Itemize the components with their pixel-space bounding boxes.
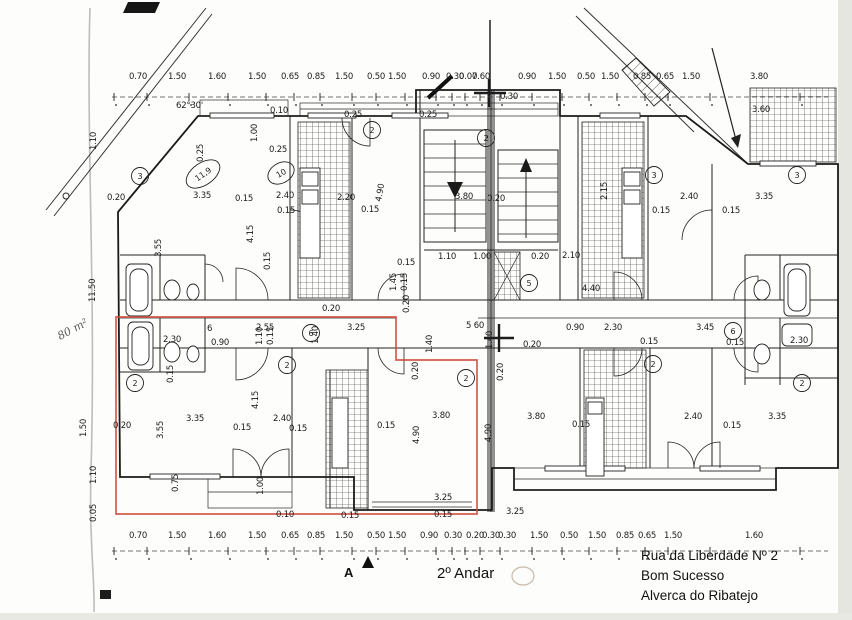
dim-label: 0.65: [281, 531, 299, 541]
address-line-3: Alverca do Ribatejo: [641, 588, 758, 603]
interior-walls: [120, 90, 838, 512]
dimension-dot: [466, 558, 468, 560]
address-line-1: Rua da Liberdade Nº 2: [641, 548, 778, 563]
room-number: 3: [137, 172, 142, 181]
dim-label: 0.25: [344, 110, 362, 120]
section-marker-a-label: A: [344, 565, 354, 580]
dim-label: 1.60: [208, 72, 226, 82]
dimension-dot: [148, 558, 150, 560]
dimension-dot: [267, 558, 269, 560]
dim-label: 3.35: [186, 414, 204, 424]
dim-label: 3.25: [434, 493, 452, 503]
dim-label: 0.15: [652, 206, 670, 216]
dim-label: 1.50: [664, 531, 682, 541]
room-number: 3: [651, 171, 656, 180]
dim-label: 0.20: [487, 194, 505, 204]
tiled-areas-hatch: [298, 88, 836, 508]
dim-label: 1.60: [208, 531, 226, 541]
address-line-2: Bom Sucesso: [641, 568, 724, 583]
dim-label: 0.25: [196, 144, 206, 162]
dim-label: 0.90: [422, 72, 440, 82]
dim-label: 4.15: [246, 225, 256, 243]
top-dimension-row: 0.701.501.601.500.650.851.500.501.500.90…: [112, 72, 828, 106]
dim-label: 0.25: [269, 145, 287, 155]
dimension-dot: [618, 558, 620, 560]
dim-label: 3.25: [506, 507, 524, 517]
room-number: 2: [369, 126, 374, 135]
dim-label: 3.80: [432, 411, 450, 421]
dimension-dot: [501, 104, 503, 106]
dim-label: 1.60: [745, 531, 763, 541]
dim-label: 0.15: [289, 424, 307, 434]
dim-label: 0.15: [235, 194, 253, 204]
dimension-dot: [321, 104, 323, 106]
dim-label: 0.60: [472, 72, 490, 82]
dim-label: 0.25: [419, 110, 437, 120]
area-annotation: 10: [275, 167, 288, 180]
dim-label: 2.40: [276, 191, 294, 201]
room-number: 2: [799, 379, 804, 388]
dim-label: 1.40: [425, 335, 435, 353]
dim-label: 2.40: [680, 192, 698, 202]
dim-label: 2.30: [163, 335, 181, 345]
dim-label: 1.40: [485, 331, 495, 349]
dim-label: 0.15: [572, 420, 590, 430]
dim-label: 1.50: [168, 72, 186, 82]
address-block: Rua da Liberdade Nº 2 Bom Sucesso Alverc…: [641, 548, 778, 603]
area-annotation: 11,9: [193, 166, 213, 184]
dim-label: 11.50: [88, 279, 98, 302]
dim-label: 3.60: [752, 105, 770, 115]
dimension-dot: [321, 558, 323, 560]
dim-label: 62°30': [176, 101, 203, 111]
dim-label: 1.00: [256, 477, 266, 495]
dim-label: 2.15: [600, 182, 610, 200]
dim-label: 3.80: [750, 72, 768, 82]
dimension-dot: [377, 104, 379, 106]
dim-label: 3.35: [193, 191, 211, 201]
dim-label: 4.40: [582, 284, 600, 294]
dimension-dot: [453, 104, 455, 106]
ramp-hatch: [622, 58, 670, 106]
room-number: 2: [463, 374, 468, 383]
dimension-dot: [267, 104, 269, 106]
room-number: 6: [730, 327, 735, 336]
dim-label: 0.85: [633, 72, 651, 82]
dim-label: 0.90: [518, 72, 536, 82]
dimension-dot: [533, 558, 535, 560]
dim-label: 0.15: [722, 206, 740, 216]
dimension-dot: [353, 558, 355, 560]
dim-label: 4.90: [484, 424, 494, 442]
dim-label: 3.80: [527, 412, 545, 422]
dimension-dot: [590, 104, 592, 106]
dimension-dot: [190, 558, 192, 560]
toilet: [187, 284, 199, 300]
dimension-dot: [646, 104, 648, 106]
dim-label: 1.10: [438, 252, 456, 262]
dimension-dot: [801, 558, 803, 560]
dim-label: 0.30: [500, 92, 518, 102]
room-number: 2: [284, 361, 289, 370]
dim-label: 0.15: [361, 205, 379, 215]
dim-label: 0.65: [281, 72, 299, 82]
dim-label: 0.90: [211, 338, 229, 348]
dim-label: 4.90: [374, 183, 387, 203]
dim-label: 0.15: [341, 511, 359, 521]
dim-label: 3.55: [156, 421, 166, 439]
dimension-dot: [669, 104, 671, 106]
dim-label: 1.50: [168, 531, 186, 541]
dim-label: 3.45: [696, 323, 714, 333]
dimension-dot: [563, 558, 565, 560]
floor-title: 2º Andar: [437, 565, 494, 582]
scan-mark: [123, 2, 160, 13]
dimension-dot: [437, 104, 439, 106]
dimension-dot: [801, 104, 803, 106]
kitchen-counter: [332, 398, 348, 468]
dim-label: 2.30: [790, 336, 808, 346]
dim-label: 0.85: [616, 531, 634, 541]
dimension-dot: [711, 104, 713, 106]
dimension-dot: [501, 558, 503, 560]
dimension-dot: [295, 558, 297, 560]
room-number: 2: [650, 360, 655, 369]
dim-label: 1.50: [248, 72, 266, 82]
dimension-dot: [406, 104, 408, 106]
dim-label: 3.80: [455, 192, 473, 202]
room-number: 2: [132, 379, 137, 388]
dim-label: 1.10: [89, 132, 99, 150]
dim-label: 2.10: [562, 251, 580, 261]
dim-label: 2.40: [273, 414, 291, 424]
floor-plan-drawing: 0.701.501.601.500.650.851.500.501.500.90…: [0, 0, 852, 620]
dimension-dot: [437, 558, 439, 560]
dim-label: 0.15: [263, 252, 273, 270]
dim-label: 0.65: [656, 72, 674, 82]
dim-label: 1.00: [250, 124, 260, 142]
dim-label: 0.50: [560, 531, 578, 541]
dim-label: 0.75: [171, 474, 181, 492]
section-marker-a-arrow: [362, 556, 374, 568]
dim-label: 3.35: [755, 192, 773, 202]
scanned-floor-plan-page: 0.701.501.601.500.650.851.500.501.500.90…: [0, 0, 852, 620]
dimension-dot: [377, 558, 379, 560]
dim-label: 4.90: [412, 426, 422, 444]
dimension-dot: [229, 558, 231, 560]
dim-label: 1.50: [335, 72, 353, 82]
dim-label: 1.10: [255, 327, 265, 345]
dim-label: 1.45: [389, 273, 399, 291]
dim-label: 1.50: [601, 72, 619, 82]
dim-label: 0.20: [531, 252, 549, 262]
handwritten-note: 80 m²: [55, 316, 90, 343]
room-number: 5: [526, 279, 531, 288]
dim-label: 2.30: [604, 323, 622, 333]
dimension-dot: [229, 104, 231, 106]
dim-label: 0.50: [367, 531, 385, 541]
dim-label: 3.35: [768, 412, 786, 422]
double-door-left: [233, 449, 289, 477]
dim-label: 2.20: [337, 193, 355, 203]
dim-label: 0.90: [566, 323, 584, 333]
dimension-dot: [590, 558, 592, 560]
toilet: [187, 346, 199, 362]
dim-label: 0.15: [233, 423, 251, 433]
dim-label: 0.10: [270, 106, 288, 116]
dim-label: 0.05: [89, 504, 99, 522]
dimension-dot: [618, 104, 620, 106]
dimension-dot: [406, 558, 408, 560]
dim-label: 0.15: [723, 421, 741, 431]
dim-label: 0.20: [496, 363, 506, 381]
dim-label: 1.50: [388, 72, 406, 82]
dimension-dot: [295, 104, 297, 106]
dim-label: 0.15: [377, 421, 395, 431]
dim-label: 1.50: [388, 531, 406, 541]
dim-label: 0.20: [113, 421, 131, 431]
dimension-dot: [481, 558, 483, 560]
washbasin: [164, 280, 180, 300]
dimension-dot: [481, 104, 483, 106]
dimension-dot: [115, 558, 117, 560]
dim-label: 1.50: [248, 531, 266, 541]
dimension-dot: [453, 558, 455, 560]
dimension-dot: [563, 104, 565, 106]
dim-label: 1.10: [89, 466, 99, 484]
dim-label: 5 60: [466, 321, 484, 331]
dim-label: 0.30: [498, 531, 516, 541]
washbasin: [164, 342, 180, 362]
dim-label: 3.55: [154, 239, 164, 257]
dim-label: 1.50: [335, 531, 353, 541]
dim-label: 0.30: [444, 531, 462, 541]
dim-label: 1.50: [548, 72, 566, 82]
dim-label: 0.15: [166, 365, 176, 383]
dim-label: 0.70: [129, 531, 147, 541]
dim-label: 4.15: [251, 391, 261, 409]
dim-label: 1.00: [473, 252, 491, 262]
dim-label: 6: [207, 324, 212, 334]
dim-label: 0.15: [434, 510, 452, 520]
dimension-dot: [115, 104, 117, 106]
dim-label: 1.50: [682, 72, 700, 82]
dim-label: 0.50: [367, 72, 385, 82]
room-number: 2: [483, 134, 488, 143]
dimension-dot: [533, 104, 535, 106]
dimension-dot: [353, 104, 355, 106]
dim-label: 0.65: [638, 531, 656, 541]
dim-label: 0.15: [400, 273, 410, 291]
dim-label: 0.15: [266, 327, 276, 345]
dim-label: 0.20: [402, 295, 412, 313]
dim-label: 0.15: [397, 258, 415, 268]
dimension-dot: [148, 104, 150, 106]
dim-label: 0.15: [640, 337, 658, 347]
dim-label: 0.20: [322, 304, 340, 314]
dim-label: 2.40: [684, 412, 702, 422]
dim-label: 3.25: [347, 323, 365, 333]
dim-label: 0.85: [307, 72, 325, 82]
dim-label: 0.15: [277, 206, 295, 216]
room-number: 6: [308, 329, 313, 338]
room-number: 3: [794, 171, 799, 180]
dim-label: 0.70: [129, 72, 147, 82]
dim-label: 1.50: [588, 531, 606, 541]
dim-label: 0.90: [420, 531, 438, 541]
dimension-dot: [466, 104, 468, 106]
dim-label: 0.85: [307, 531, 325, 541]
dim-label: 0.10: [276, 510, 294, 520]
dim-label: 1.50: [530, 531, 548, 541]
dim-label: 0.20: [523, 340, 541, 350]
room-number-markers: 322335662222211,910: [127, 122, 811, 392]
dim-label: 0.20: [107, 193, 125, 203]
dim-label: 1.50: [79, 419, 89, 437]
dim-label: 0.20: [411, 362, 421, 380]
dim-label: 0.50: [577, 72, 595, 82]
